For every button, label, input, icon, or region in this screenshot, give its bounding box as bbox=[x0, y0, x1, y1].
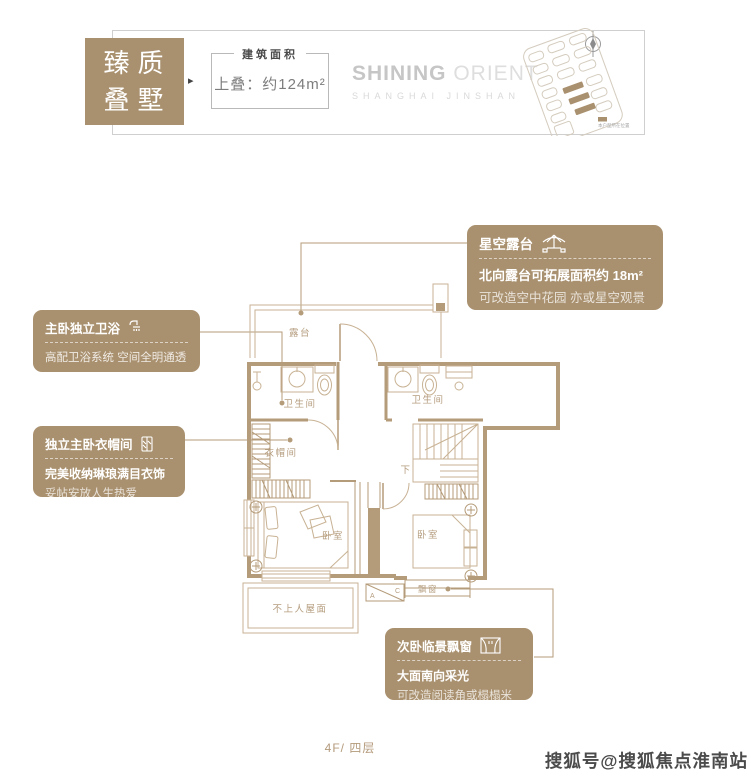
ac-label-a: A bbox=[370, 593, 375, 600]
bathroom-left-fixtures bbox=[253, 365, 334, 395]
label-roof: 不上人屋面 bbox=[272, 604, 327, 615]
interior-walls bbox=[251, 362, 483, 576]
callout-bay-window: 次卧临景飘窗 大面南向采光 可改造阅读角或榻榻米 bbox=[385, 628, 533, 700]
callout-star-terrace: 星空露台 北向露台可拓展面积约 18m² 可改造空中花园 亦或星空观景台 bbox=[467, 225, 663, 310]
floor-indicator: 4F/ 四层 bbox=[310, 739, 390, 756]
ac-label-c: C bbox=[395, 588, 400, 595]
callout-bay-window-line2: 可改造阅读角或榻榻米 bbox=[397, 687, 521, 703]
label-bay-window: 飘窗 bbox=[418, 584, 438, 594]
label-bath-left: 卫生间 bbox=[283, 398, 316, 410]
callout-bay-window-line1: 大面南向采光 bbox=[397, 667, 521, 684]
bed-right bbox=[413, 515, 477, 568]
bay-window-icon bbox=[480, 637, 501, 654]
wardrobe-icon bbox=[141, 436, 153, 452]
wardrobe-under-stairs bbox=[425, 484, 478, 499]
label-cloakroom: 衣帽间 bbox=[264, 447, 297, 459]
callout-master-bath-line1: 高配卫浴系统 空间全明通透 bbox=[45, 349, 188, 365]
windows bbox=[244, 500, 330, 581]
wardrobe-cloak-bottom bbox=[252, 480, 310, 498]
callout-divider bbox=[45, 342, 188, 343]
label-terrace: 露台 bbox=[289, 327, 311, 339]
callout-divider bbox=[479, 258, 651, 259]
callout-star-terrace-line2: 可改造空中花园 亦或星空观景台 bbox=[479, 287, 651, 325]
watermark: 搜狐号@搜狐焦点淮南站 bbox=[545, 748, 748, 773]
stairs bbox=[413, 424, 478, 482]
callout-bay-window-title: 次卧临景飘窗 bbox=[397, 636, 472, 655]
callout-cloakroom: 独立主卧衣帽间 完美收纳琳琅满目衣饰 妥帖安放人生热爱 bbox=[33, 426, 185, 497]
ac-platform: A C bbox=[366, 584, 404, 601]
duct-wall-block bbox=[368, 508, 380, 576]
label-stairs-down: 下 bbox=[400, 465, 411, 476]
terrace-column bbox=[436, 303, 445, 311]
callout-star-terrace-title: 星空露台 bbox=[479, 233, 533, 253]
shower-icon bbox=[128, 320, 141, 336]
callout-cloakroom-title: 独立主卧衣帽间 bbox=[45, 434, 133, 453]
bedside-ornaments bbox=[250, 501, 477, 582]
label-bed-right: 卧室 bbox=[417, 529, 439, 541]
floor-plan: A C bbox=[0, 0, 751, 777]
callout-cloakroom-line2: 妥帖安放人生热爱 bbox=[45, 485, 173, 501]
callout-divider bbox=[45, 458, 173, 459]
bathroom-right-fixtures bbox=[388, 365, 472, 395]
terrace-door bbox=[340, 324, 377, 361]
terrace-parapet bbox=[250, 284, 448, 358]
callout-star-terrace-line1: 北向露台可拓展面积约 18m² bbox=[479, 265, 651, 284]
interior-doors bbox=[308, 420, 409, 509]
callout-divider bbox=[397, 660, 521, 661]
label-bed-left: 卧室 bbox=[322, 530, 344, 542]
callout-cloakroom-line1: 完美收纳琳琅满目衣饰 bbox=[45, 465, 173, 482]
callout-master-bath: 主卧独立卫浴 高配卫浴系统 空间全明通透 bbox=[33, 310, 200, 372]
callout-master-bath-title: 主卧独立卫浴 bbox=[45, 318, 120, 337]
callout-leader-dots bbox=[280, 311, 451, 592]
label-bath-right: 卫生间 bbox=[411, 394, 444, 406]
parasol-icon bbox=[541, 233, 567, 253]
